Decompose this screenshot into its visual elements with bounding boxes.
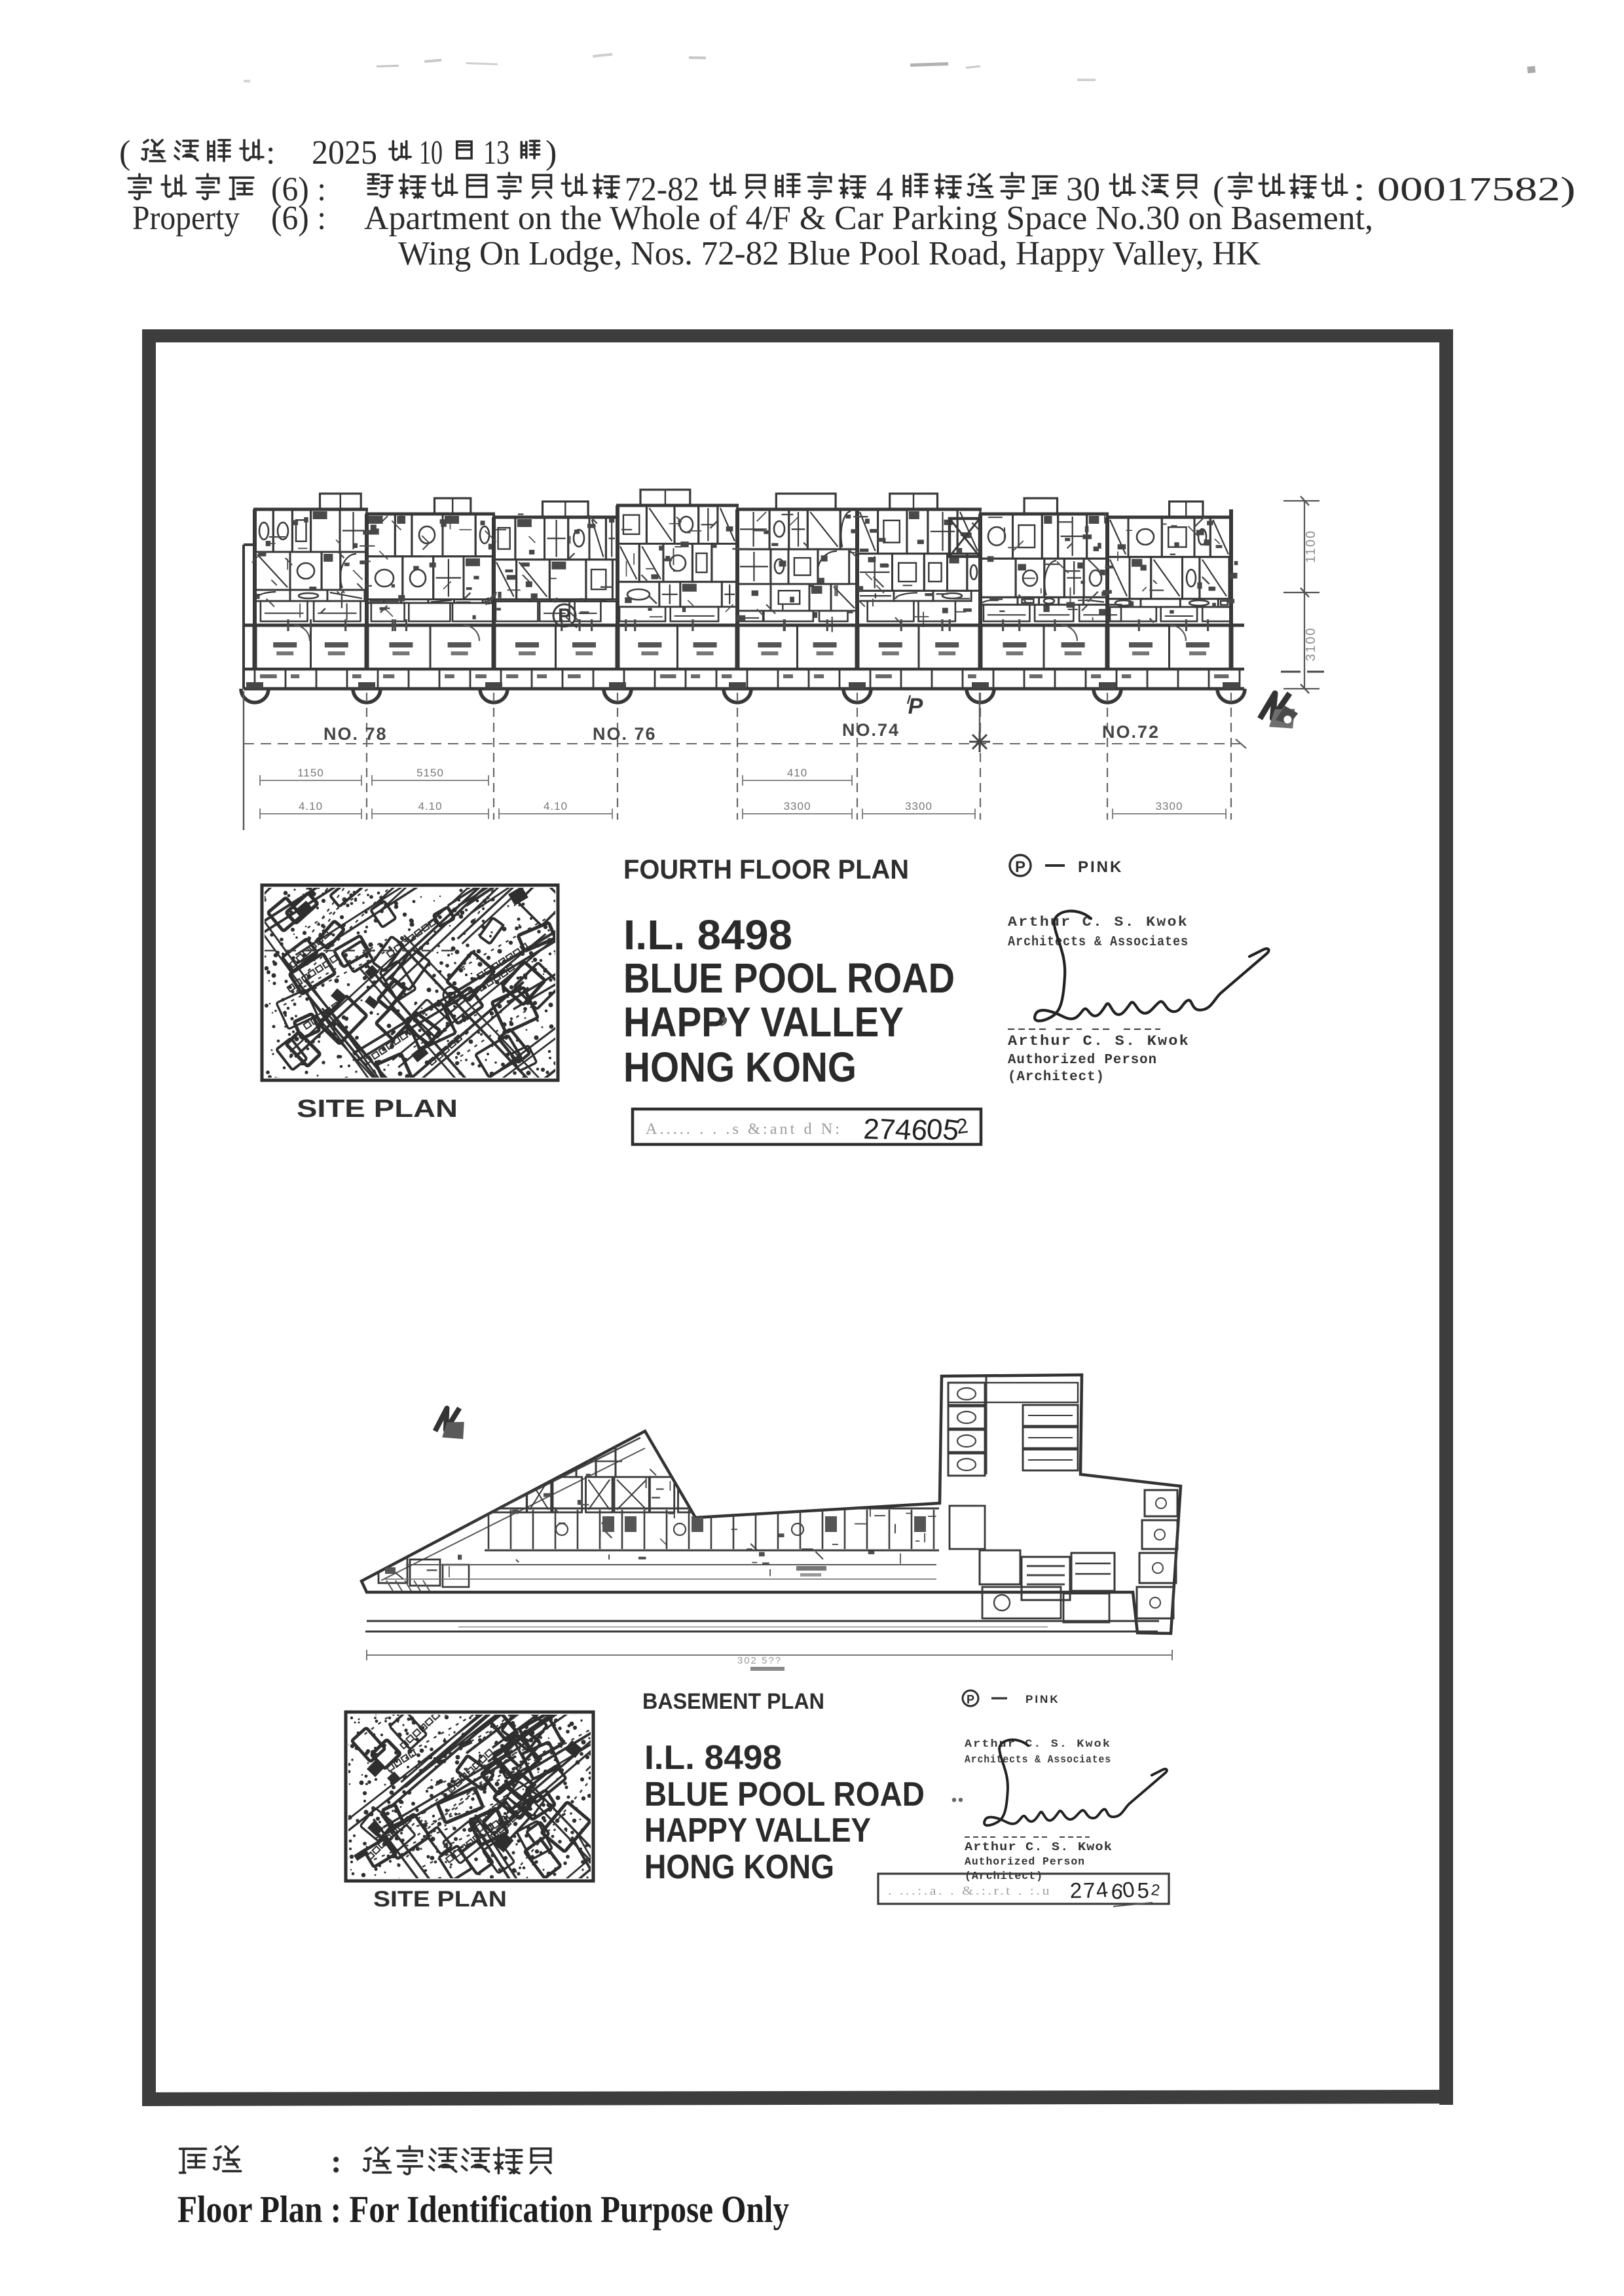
svg-text:Arthur C. S. Kwok: Arthur C. S. Kwok xyxy=(1008,1033,1190,1049)
svg-text:1100: 1100 xyxy=(1304,530,1318,563)
svg-text:4.10: 4.10 xyxy=(418,800,442,812)
svg-text:. ...:.a. . &.:.r.t . :.u: . ...:.a. . &.:.r.t . :.u xyxy=(888,1884,1052,1898)
svg-text:Apartment on the Whole of 4/F: Apartment on the Whole of 4/F & Car Park… xyxy=(364,200,1373,237)
svg-text::: : xyxy=(331,2143,342,2179)
svg-text:3100: 3100 xyxy=(1304,627,1318,662)
svg-text:Wing On Lodge, Nos. 72-82 Blue: Wing On Lodge, Nos. 72-82 Blue Pool Road… xyxy=(398,235,1261,272)
svg-text:NO.74: NO.74 xyxy=(842,720,900,740)
svg-text:Authorized Person: Authorized Person xyxy=(965,1856,1085,1868)
svg-text:P: P xyxy=(967,1693,974,1706)
svg-text:Arthur C. S. Kwok: Arthur C. S. Kwok xyxy=(965,1841,1113,1854)
svg-text:410: 410 xyxy=(787,767,807,779)
svg-text:Floor Plan : For Identificatio: Floor Plan : For Identification Purpose … xyxy=(177,2188,789,2231)
svg-text:302 5??: 302 5?? xyxy=(737,1655,782,1666)
svg-text:Property: Property xyxy=(132,200,240,237)
svg-text:HONG KONG: HONG KONG xyxy=(623,1044,857,1091)
svg-text:NO. 76: NO. 76 xyxy=(593,724,657,744)
svg-text:P: P xyxy=(558,605,571,627)
svg-text:SITE PLAN: SITE PLAN xyxy=(297,1095,458,1123)
svg-text:2: 2 xyxy=(1069,1878,1082,1903)
svg-text:NO. 78: NO. 78 xyxy=(323,724,388,744)
svg-text:Architects & Associates: Architects & Associates xyxy=(1008,935,1189,950)
svg-text:2025: 2025 xyxy=(312,134,377,172)
svg-text:HAPPY VALLEY: HAPPY VALLEY xyxy=(623,998,904,1046)
svg-text:(Architect): (Architect) xyxy=(965,1870,1043,1883)
svg-text:): ) xyxy=(545,134,557,172)
svg-text:P: P xyxy=(447,990,456,1004)
svg-text:2: 2 xyxy=(955,1114,970,1139)
svg-text:BASEMENT PLAN: BASEMENT PLAN xyxy=(642,1689,824,1714)
svg-text:2: 2 xyxy=(863,1113,880,1146)
svg-text:SITE PLAN: SITE PLAN xyxy=(373,1887,507,1912)
svg-text:NO.72: NO.72 xyxy=(1102,722,1160,742)
svg-text:3300: 3300 xyxy=(905,800,932,812)
svg-text:HAPPY VALLEY: HAPPY VALLEY xyxy=(644,1812,871,1850)
svg-text:4: 4 xyxy=(1094,1877,1109,1903)
svg-text:0: 0 xyxy=(1120,1876,1136,1902)
svg-text:4.10: 4.10 xyxy=(299,800,323,812)
svg-text:1150: 1150 xyxy=(297,767,324,779)
svg-text:BLUE POOL ROAD: BLUE POOL ROAD xyxy=(644,1776,925,1813)
svg-text:BLUE POOL ROAD: BLUE POOL ROAD xyxy=(623,955,955,1002)
svg-text::: : xyxy=(266,134,275,172)
svg-text:Authorized Person: Authorized Person xyxy=(1008,1053,1157,1068)
svg-text:I.L. 8498: I.L. 8498 xyxy=(644,1739,782,1777)
svg-text:P: P xyxy=(1015,858,1025,876)
svg-text:5150: 5150 xyxy=(416,767,444,779)
svg-text:10: 10 xyxy=(419,134,443,172)
svg-text:Arthur C. S. Kwok: Arthur C. S. Kwok xyxy=(965,1738,1111,1751)
svg-text:(Architect): (Architect) xyxy=(1008,1070,1105,1085)
svg-text:13: 13 xyxy=(483,134,509,172)
svg-text:A..... . . .s &:ant d N:: A..... . . .s &:ant d N: xyxy=(646,1121,842,1138)
svg-text:: 00017582): : 00017582) xyxy=(1353,171,1576,208)
svg-text:HONG KONG: HONG KONG xyxy=(644,1848,834,1886)
svg-text:Architects & Associates: Architects & Associates xyxy=(965,1754,1111,1766)
svg-text:I.L. 8498: I.L. 8498 xyxy=(623,911,792,958)
svg-text:5: 5 xyxy=(1137,1878,1149,1903)
svg-text:..: .. xyxy=(951,1778,964,1808)
svg-text:3300: 3300 xyxy=(784,800,811,812)
svg-text:FOURTH FLOOR PLAN: FOURTH FLOOR PLAN xyxy=(623,854,909,884)
svg-text:2: 2 xyxy=(1150,1881,1161,1899)
svg-text:(6) :: (6) : xyxy=(271,200,326,237)
svg-text:4.10: 4.10 xyxy=(544,800,568,812)
svg-text:(: ( xyxy=(119,134,130,172)
svg-text:PINK: PINK xyxy=(1025,1693,1060,1705)
svg-text:3300: 3300 xyxy=(1156,800,1183,812)
svg-text:,: , xyxy=(720,994,728,1029)
svg-text:PINK: PINK xyxy=(1078,858,1123,876)
svg-text:7: 7 xyxy=(1082,1878,1096,1903)
svg-text:Arthur C. S. Kwok: Arthur C. S. Kwok xyxy=(1008,915,1189,930)
